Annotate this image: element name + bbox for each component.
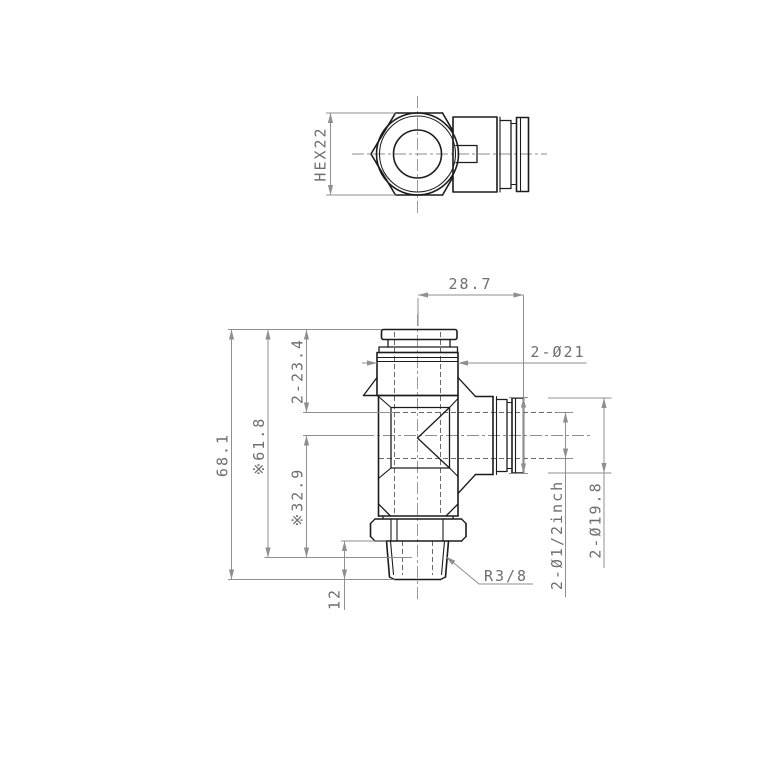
thread-length-label: 12 — [326, 588, 344, 610]
technical-drawing: HEX22 — [0, 0, 768, 768]
thread-spec-label: R3/8 — [484, 567, 528, 585]
insert-depth-label: 2-23.4 — [289, 338, 307, 404]
dimension-12: 12 — [326, 541, 345, 610]
side-port — [458, 397, 524, 494]
drawing-canvas: HEX22 — [0, 0, 768, 768]
ref-height-label: ※61.8 — [250, 417, 268, 476]
dimension-28-7: 28.7 — [418, 275, 524, 326]
overall-height-label: 68.1 — [214, 433, 232, 477]
collar-diameter-label: 2-Ø19.8 — [587, 481, 605, 558]
center-block — [364, 396, 459, 517]
front-view: 28.7 2-Ø21 68.1 ※61.8 2 — [214, 275, 612, 610]
leader-r3-8: R3/8 — [446, 557, 533, 586]
dimension-68-1: 68.1 — [214, 330, 232, 580]
top-view: HEX22 — [312, 96, 548, 213]
dimension-61-8: ※61.8 — [250, 330, 268, 558]
hex-nut — [371, 516, 467, 541]
dimension-2-d21: 2-Ø21 — [362, 295, 587, 474]
tube-size-label: 2-Ø1/2inch — [548, 480, 566, 590]
dimension-32-9: ※32.9 — [289, 436, 307, 558]
dimension-2-23-4: 2-23.4 — [289, 330, 307, 413]
dimension-tube-size: 2-Ø1/2inch — [548, 413, 573, 598]
hex22-label: HEX22 — [312, 126, 330, 181]
ref-branch-height-label: ※32.9 — [289, 468, 307, 527]
release-cap — [382, 330, 458, 340]
branch-length-label: 28.7 — [448, 275, 492, 293]
hidden-bore-lines — [379, 332, 568, 575]
top-view-side-connector — [453, 117, 529, 192]
body-diameter-label: 2-Ø21 — [530, 343, 585, 361]
